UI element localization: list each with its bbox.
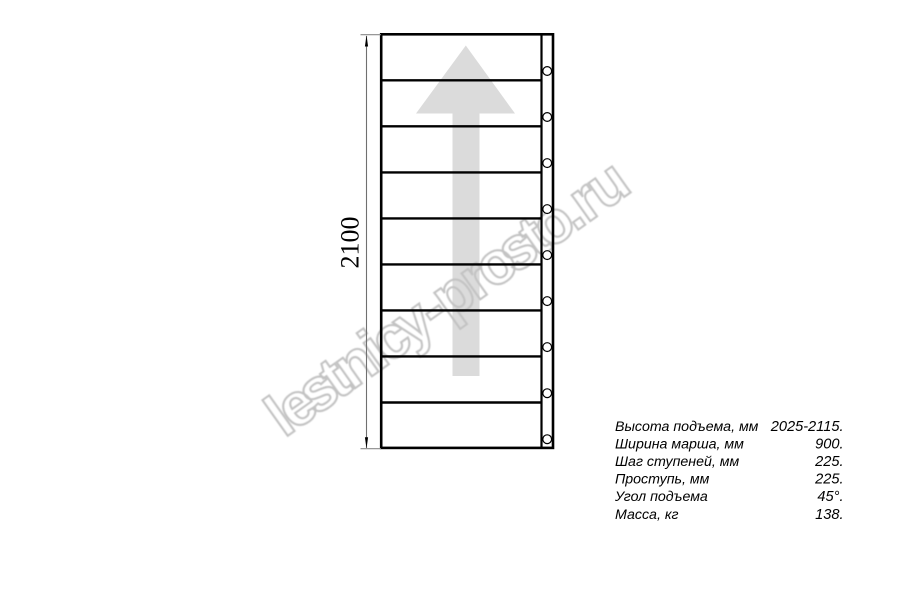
svg-text:Угол подъема: Угол подъема	[614, 489, 708, 505]
svg-text:2100: 2100	[336, 217, 365, 269]
svg-text:225.: 225.	[814, 472, 843, 488]
svg-text:Ширина марша, мм: Ширина марша, мм	[615, 436, 744, 452]
svg-text:900.: 900.	[815, 436, 843, 452]
svg-text:Проступь, мм: Проступь, мм	[615, 472, 710, 488]
svg-text:Шаг ступеней, мм: Шаг ступеней, мм	[615, 454, 739, 470]
svg-text:138.: 138.	[815, 507, 843, 523]
svg-text:2025-2115.: 2025-2115.	[770, 419, 844, 435]
svg-text:Высота подъема, мм: Высота подъема, мм	[615, 419, 759, 435]
svg-text:Масса, кг: Масса, кг	[615, 507, 679, 523]
svg-text:45°.: 45°.	[817, 489, 843, 505]
svg-text:225.: 225.	[814, 454, 843, 470]
